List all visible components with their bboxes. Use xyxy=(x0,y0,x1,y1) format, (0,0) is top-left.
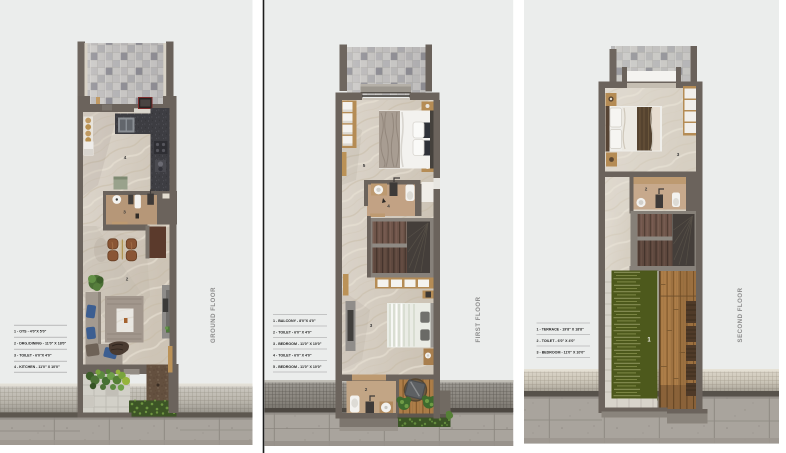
svg-text:5: 5 xyxy=(363,163,366,168)
svg-text:4: 4 xyxy=(124,155,127,160)
svg-text:SECOND FLOOR: SECOND FLOOR xyxy=(738,287,744,342)
svg-text:3 - TOILET - 6'0"X 4'0": 3 - TOILET - 6'0"X 4'0" xyxy=(14,354,52,358)
svg-text:2: 2 xyxy=(645,187,648,192)
svg-text:1 - OTS - 4'0"X 5'0": 1 - OTS - 4'0"X 5'0" xyxy=(14,330,47,334)
svg-text:GROUND FLOOR: GROUND FLOOR xyxy=(211,287,217,343)
svg-text:1 - BALCONY - 8'0"X 4'0": 1 - BALCONY - 8'0"X 4'0" xyxy=(273,319,316,323)
svg-text:5 - BEDROOM - 11'0" X 10'0": 5 - BEDROOM - 11'0" X 10'0" xyxy=(273,365,322,369)
svg-text:4 - KITCHEN - 11'0" X 10'0": 4 - KITCHEN - 11'0" X 10'0" xyxy=(14,365,60,369)
svg-text:3: 3 xyxy=(123,210,126,215)
svg-text:4: 4 xyxy=(387,204,390,209)
svg-text:4 - TOILET - 6'0" X 4'0": 4 - TOILET - 6'0" X 4'0" xyxy=(273,353,312,357)
svg-text:2: 2 xyxy=(365,387,368,392)
svg-text:2 - TOILET - 6'0" X 4'0": 2 - TOILET - 6'0" X 4'0" xyxy=(537,339,576,343)
svg-text:3: 3 xyxy=(677,152,680,157)
svg-text:3 - BEDROOM - 11'0" X 10'0": 3 - BEDROOM - 11'0" X 10'0" xyxy=(537,350,586,354)
svg-text:2 - TOILET - 6'0" X 4'0": 2 - TOILET - 6'0" X 4'0" xyxy=(273,330,312,334)
svg-text:2: 2 xyxy=(126,277,129,282)
svg-text:3 - BEDROOM - 11'0" X 10'0": 3 - BEDROOM - 11'0" X 10'0" xyxy=(273,342,322,346)
svg-text:FIRST FLOOR: FIRST FLOOR xyxy=(476,296,482,342)
svg-text:3: 3 xyxy=(370,323,373,328)
svg-text:1 - TERRACE - 19'8" X 18'8": 1 - TERRACE - 19'8" X 18'8" xyxy=(537,327,585,331)
svg-text:2 - DRG./DINING - 11'0" X 18'0: 2 - DRG./DINING - 11'0" X 18'0" xyxy=(14,342,67,346)
